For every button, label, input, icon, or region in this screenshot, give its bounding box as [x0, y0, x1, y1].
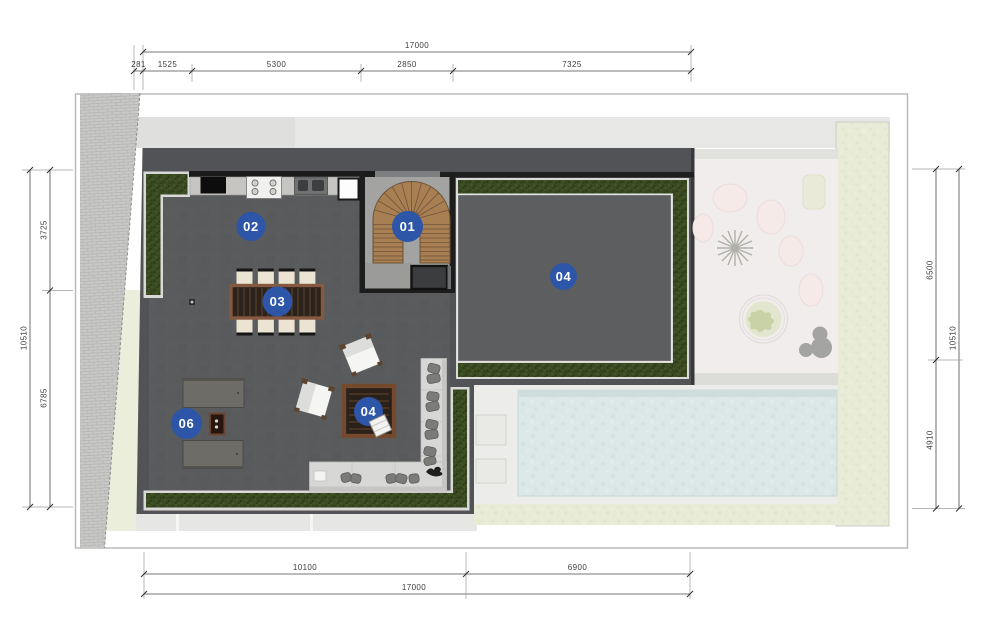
svg-text:281: 281: [131, 60, 146, 69]
svg-text:02: 02: [243, 219, 259, 234]
svg-text:17000: 17000: [405, 41, 429, 50]
svg-text:4910: 4910: [926, 430, 935, 450]
svg-text:03: 03: [270, 294, 286, 309]
svg-text:17000: 17000: [402, 583, 426, 592]
svg-text:04: 04: [361, 404, 377, 419]
svg-text:6900: 6900: [568, 563, 588, 572]
svg-text:04: 04: [556, 269, 572, 284]
svg-text:01: 01: [400, 219, 416, 234]
svg-text:10510: 10510: [20, 326, 29, 350]
svg-text:2850: 2850: [397, 60, 417, 69]
svg-text:06: 06: [179, 416, 195, 431]
svg-text:10100: 10100: [293, 563, 317, 572]
svg-text:3725: 3725: [40, 220, 49, 240]
svg-text:1525: 1525: [158, 60, 178, 69]
svg-text:5300: 5300: [267, 60, 287, 69]
svg-text:10510: 10510: [949, 326, 958, 350]
svg-text:6785: 6785: [40, 388, 49, 408]
svg-text:6500: 6500: [926, 260, 935, 280]
svg-text:7325: 7325: [562, 60, 582, 69]
